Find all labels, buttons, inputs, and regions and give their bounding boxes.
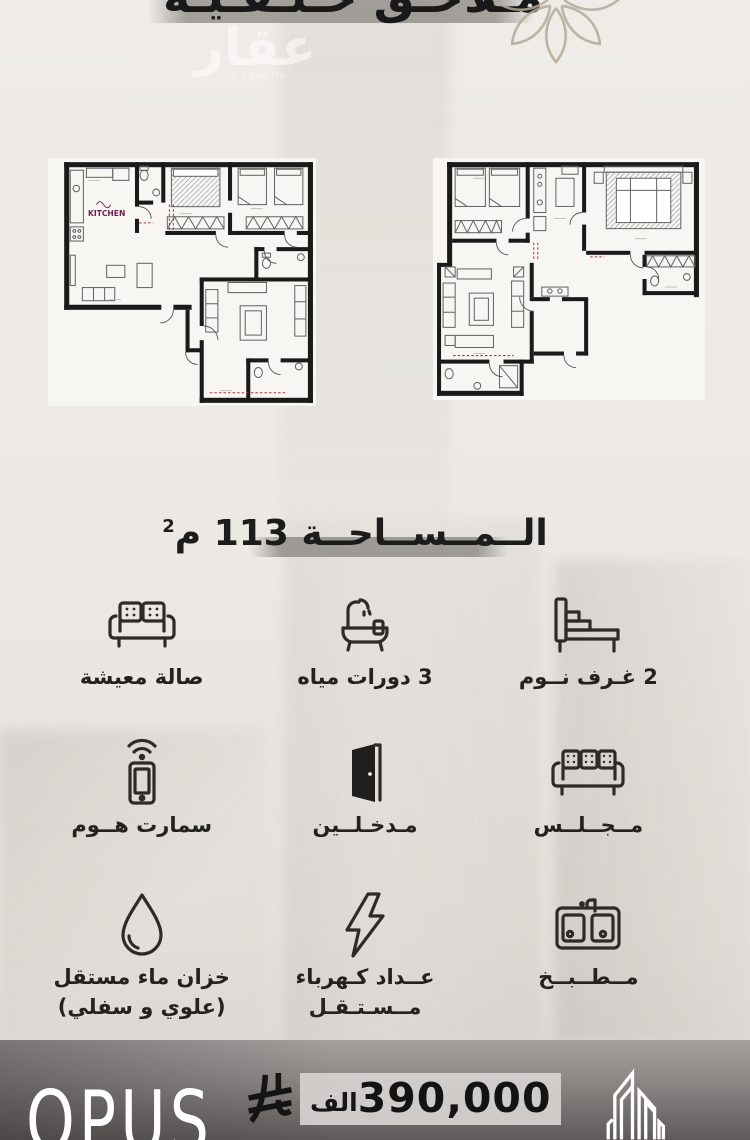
amenity-electric-meter: عــداد كـهرباء مــسـتـقـل xyxy=(253,888,476,1058)
amenity-label-line2: مــسـتـقـل xyxy=(309,992,422,1022)
amenity-label: خزان ماء مستقل xyxy=(54,962,230,992)
building-logo-icon xyxy=(606,1066,670,1140)
amenity-label: 3 دورات مياه xyxy=(297,662,432,692)
area-heading: الــمــســاحــة 113 م2 xyxy=(0,513,730,554)
saudi-riyal-icon xyxy=(244,1070,296,1128)
watermark-logo-text: عقار xyxy=(194,20,316,77)
amenity-bedrooms: 2 غـرف نــوم xyxy=(477,588,700,736)
bathtub-icon xyxy=(333,588,397,662)
amenity-label: مــطــبــخ xyxy=(538,962,638,992)
smart-home-icon xyxy=(115,736,169,810)
amenity-bathrooms: 3 دورات مياه xyxy=(253,588,476,736)
brand-logo-text: OPUS xyxy=(26,1072,213,1140)
price-unit: الف xyxy=(310,1088,358,1117)
amenity-majlis: مــجــلــس xyxy=(477,736,700,888)
water-tank-icon xyxy=(114,888,170,962)
sofa-icon xyxy=(107,588,177,662)
amenity-label: مـدخـلــين xyxy=(313,810,418,840)
price-highlight-band: الف 390,000 xyxy=(300,1073,561,1125)
kitchen-label: KITCHEN xyxy=(88,209,125,218)
amenity-label: 2 غـرف نــوم xyxy=(519,662,658,692)
amenity-label: مــجــلــس xyxy=(534,810,643,840)
price-block: الف 390,000 xyxy=(244,1070,561,1128)
amenities-grid: 2 غـرف نــوم 3 دورات مياه xyxy=(30,588,700,1058)
amenity-label-line2: (علوي و سفلي) xyxy=(58,992,226,1022)
kitchen-sink-icon xyxy=(554,888,622,962)
amenity-living-room: صالة معيشة xyxy=(30,588,253,736)
area-value: 113 xyxy=(214,513,289,554)
floorplan-right-image xyxy=(433,158,705,400)
area-unit: م xyxy=(175,513,201,554)
door-icon xyxy=(335,736,395,810)
amenity-kitchen: مــطــبــخ xyxy=(477,888,700,1058)
lotus-flower-icon xyxy=(472,0,640,84)
electric-meter-icon xyxy=(337,888,393,962)
aqar-watermark: عقار sa.aqar.fm xyxy=(194,20,316,82)
area-label: الــمــســاحــة xyxy=(301,513,547,554)
amenity-water-tank: خزان ماء مستقل (علوي و سفلي) xyxy=(30,888,253,1058)
majlis-sofa-icon xyxy=(550,736,626,810)
amenity-label: سمارت هــوم xyxy=(71,810,212,840)
floorplan-left-image: KITCHEN xyxy=(48,158,316,406)
footer-band: OPUS الف 390,000 xyxy=(0,1040,750,1140)
price-value: 390,000 xyxy=(358,1074,552,1122)
amenity-label: عــداد كـهرباء xyxy=(296,962,435,992)
real-estate-flyer: مـلاحـق خـلـفـيـة عقار sa.aqar.fm xyxy=(0,0,750,1140)
area-superscript: 2 xyxy=(162,516,175,537)
amenity-label: صالة معيشة xyxy=(80,662,204,692)
bed-icon xyxy=(552,588,624,662)
amenity-entrances: مـدخـلــين xyxy=(253,736,476,888)
amenity-smart-home: سمارت هــوم xyxy=(30,736,253,888)
